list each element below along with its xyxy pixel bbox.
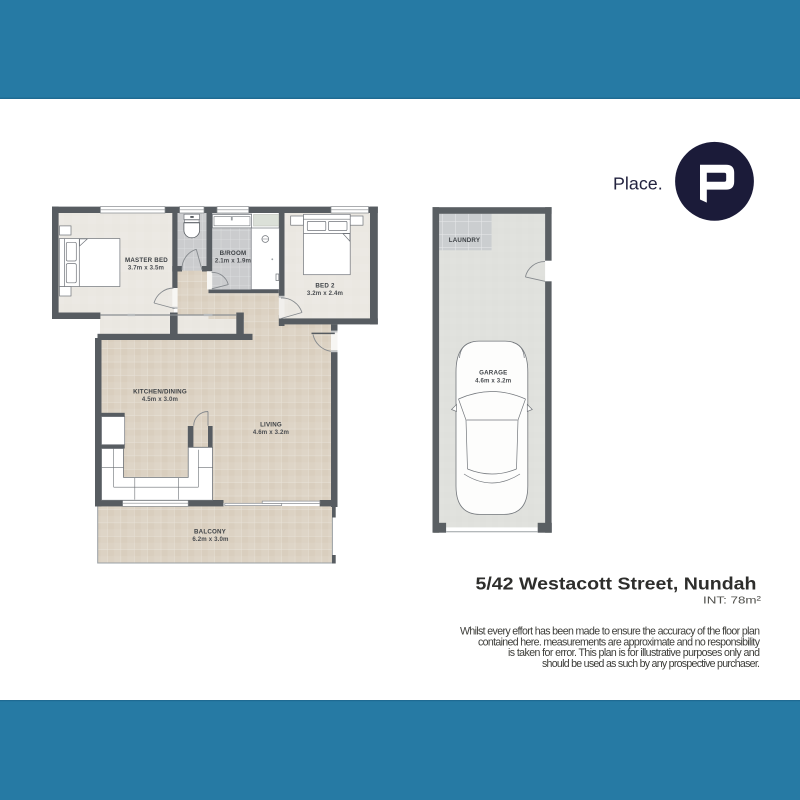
svg-text:GARAGE: GARAGE [479, 370, 507, 377]
svg-text:INT: 78m²: INT: 78m² [703, 596, 762, 607]
svg-text:5/42 Westacott Street, Nundah: 5/42 Westacott Street, Nundah [476, 573, 757, 593]
svg-text:LIVING: LIVING [260, 422, 282, 429]
svg-text:BALCONY: BALCONY [194, 529, 227, 536]
svg-text:KITCHEN/DINING: KITCHEN/DINING [133, 389, 187, 396]
svg-text:4.6m x 3.2m: 4.6m x 3.2m [475, 378, 512, 385]
svg-text:LAUNDRY: LAUNDRY [449, 237, 481, 244]
svg-text:should be used as such by any: should be used as such by any prospectiv… [542, 658, 760, 670]
svg-text:3.2m x 2.4m: 3.2m x 2.4m [307, 290, 344, 297]
svg-text:4.6m x 3.2m: 4.6m x 3.2m [253, 429, 290, 436]
svg-text:B/ROOM: B/ROOM [220, 250, 247, 257]
svg-text:2.1m x 1.9m: 2.1m x 1.9m [215, 258, 252, 265]
svg-text:3.7m x 3.5m: 3.7m x 3.5m [128, 265, 165, 272]
svg-text:MASTER BED: MASTER BED [125, 257, 168, 264]
svg-text:Place.: Place. [613, 173, 663, 193]
svg-text:6.2m x 3.0m: 6.2m x 3.0m [192, 536, 229, 543]
svg-text:BED 2: BED 2 [315, 283, 335, 290]
svg-text:4.5m x 3.0m: 4.5m x 3.0m [142, 396, 179, 403]
